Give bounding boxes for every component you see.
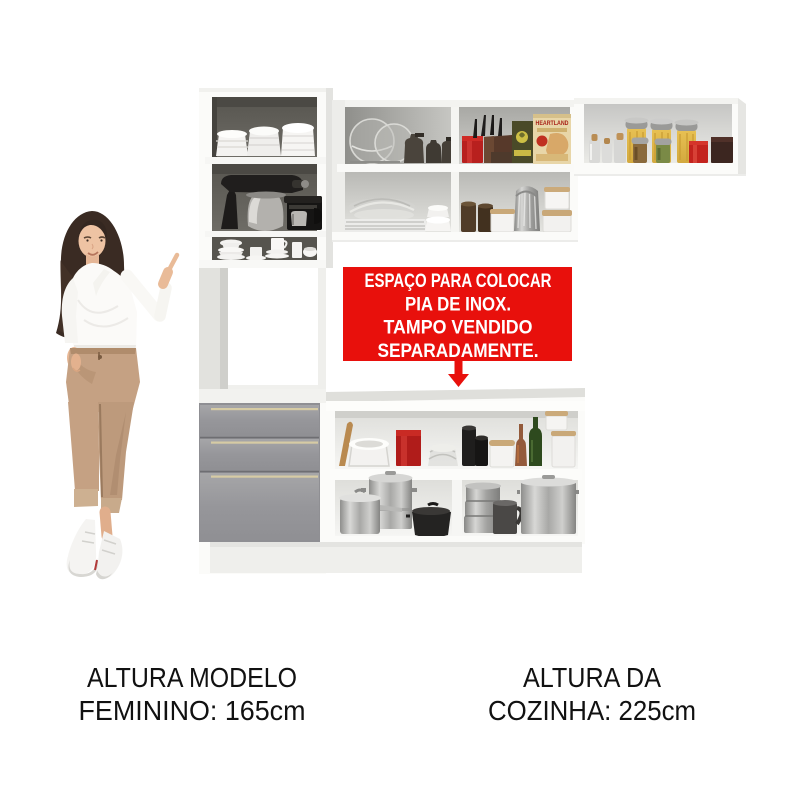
svg-text:HEARTLAND: HEARTLAND: [536, 120, 569, 127]
svg-text:FEMININO: 165cm: FEMININO: 165cm: [79, 695, 306, 726]
svg-text:ALTURA MODELO: ALTURA MODELO: [87, 662, 297, 693]
svg-text:TAMPO VENDIDO: TAMPO VENDIDO: [384, 318, 533, 339]
svg-text:COZINHA: 225cm: COZINHA: 225cm: [488, 695, 696, 726]
svg-text:ALTURA DA: ALTURA DA: [523, 662, 662, 693]
svg-text:PIA DE INOX.: PIA DE INOX.: [405, 295, 511, 316]
svg-text:SEPARADAMENTE.: SEPARADAMENTE.: [378, 341, 539, 362]
svg-text:ESPAÇO PARA COLOCAR: ESPAÇO PARA COLOCAR: [365, 271, 552, 292]
